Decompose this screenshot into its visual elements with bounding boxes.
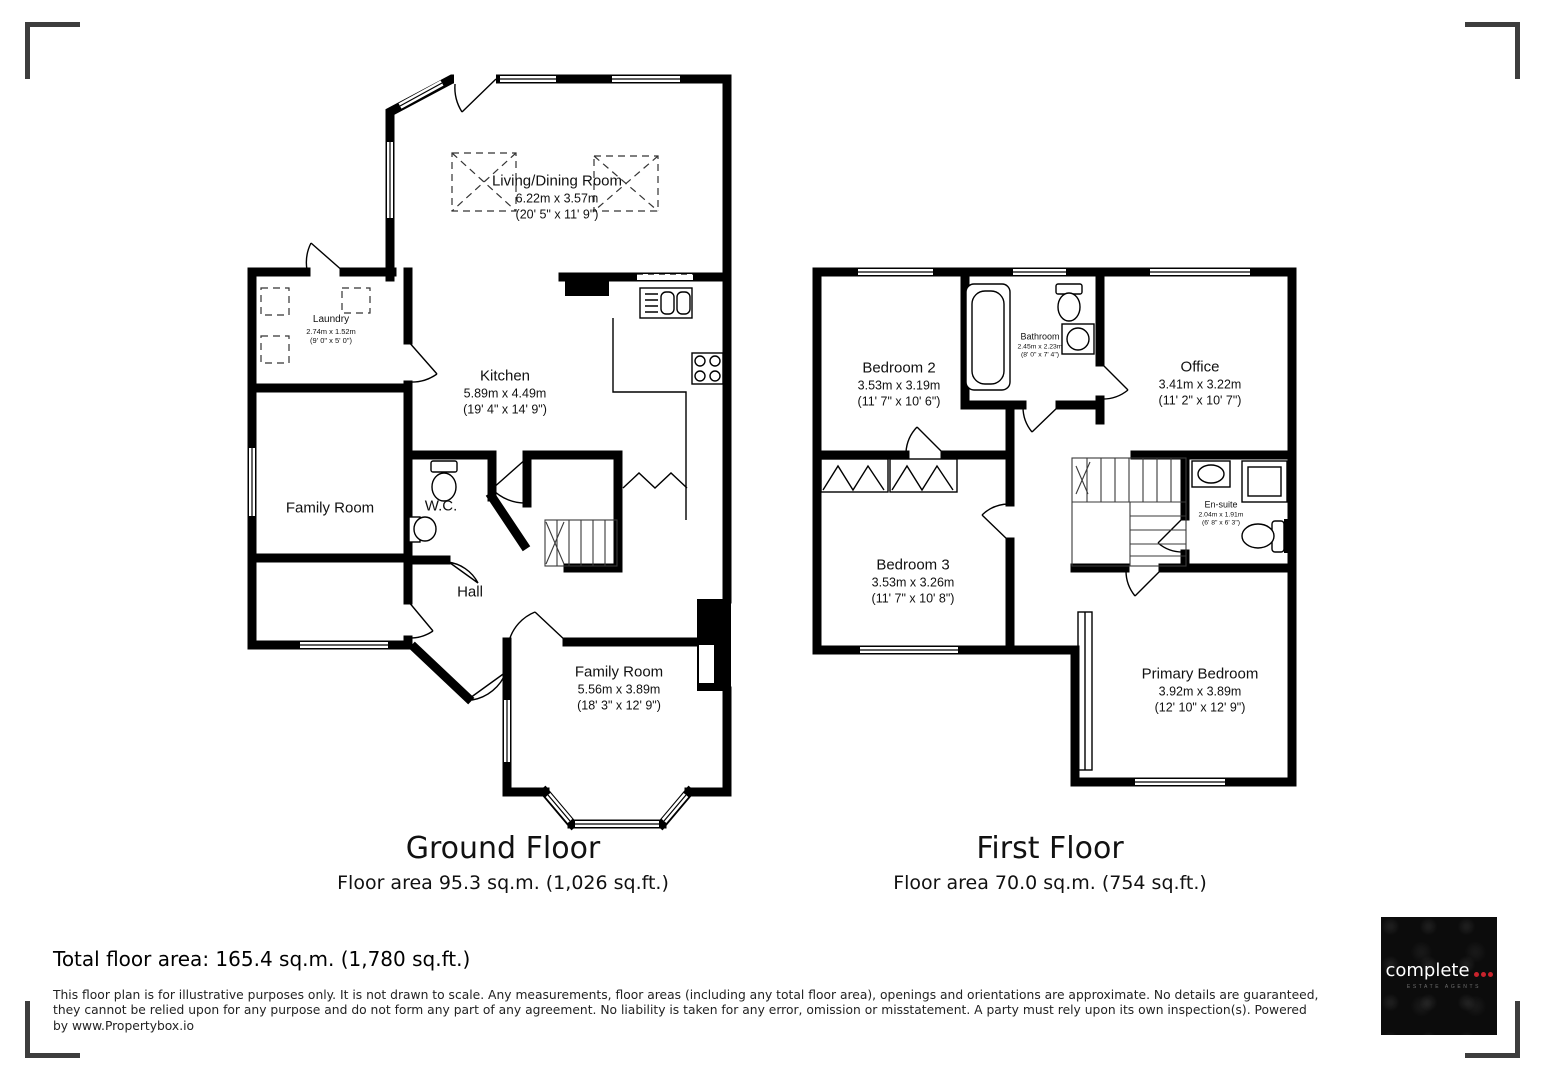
wc-toilet-icon: [431, 461, 457, 501]
room-label-office: Office 3.41m x 3.22m (11' 2" x 10' 7"): [1159, 357, 1242, 408]
room-name: Bedroom 3: [872, 555, 955, 574]
floor-plan-canvas: [0, 0, 1544, 1080]
room-name: Bedroom 2: [858, 358, 941, 377]
room-label-living-dining-room: Living/Dining Room 6.22m x 3.57m (20' 5"…: [492, 171, 622, 222]
ground-floor-stairs: [545, 520, 617, 566]
room-dimensions-metric: 2.45m x 2.23m: [1018, 343, 1063, 352]
disclaimer-line: This floor plan is for illustrative purp…: [53, 988, 1318, 1003]
room-dimensions-imperial: (20' 5" x 11' 9"): [492, 207, 622, 223]
shower-icon: [1242, 461, 1287, 502]
agency-logo: complete ESTATE AGENTS: [1381, 917, 1497, 1035]
room-dimensions-imperial: (18' 3" x 12' 9"): [575, 698, 663, 714]
bifold-door: [623, 473, 687, 488]
room-label-wc: W.C.: [425, 496, 458, 515]
room-label-family-room-2: Family Room 5.56m x 3.89m (18' 3" x 12' …: [575, 662, 663, 713]
bathroom-sink-icon: [1062, 324, 1094, 354]
first-floor-title: First Floor: [976, 831, 1123, 866]
logo-dots-icon: [1472, 972, 1493, 977]
room-name: Family Room: [575, 662, 663, 681]
room-name: Kitchen: [463, 366, 547, 385]
room-label-ensuite: En-suite 2.04m x 1.91m (6' 8" x 6' 3"): [1199, 500, 1244, 529]
room-dimensions-imperial: (8' 0" x 7' 4"): [1018, 352, 1063, 361]
kitchen-sink-icon: [640, 288, 692, 318]
room-dimensions-metric: 2.74m x 1.52m: [306, 327, 356, 337]
disclaimer-text: This floor plan is for illustrative purp…: [53, 988, 1318, 1034]
room-name: W.C.: [425, 496, 458, 515]
room-name: Office: [1159, 357, 1242, 376]
room-dimensions-metric: 3.53m x 3.26m: [872, 575, 955, 591]
bathroom-toilet-icon: [1056, 284, 1082, 321]
wc-sink-icon: [409, 517, 436, 542]
room-dimensions-metric: 5.56m x 3.89m: [575, 682, 663, 698]
room-label-hall: Hall: [457, 582, 483, 601]
room-label-primary-bedroom: Primary Bedroom 3.92m x 3.89m (12' 10" x…: [1142, 664, 1259, 715]
room-dimensions-imperial: (19' 4" x 14' 9"): [463, 402, 547, 418]
disclaimer-line: by www.Propertybox.io: [53, 1019, 1318, 1034]
room-name: En-suite: [1199, 500, 1244, 512]
room-label-kitchen: Kitchen 5.89m x 4.49m (19' 4" x 14' 9"): [463, 366, 547, 417]
ground-floor-title: Ground Floor: [406, 831, 601, 866]
room-name: Primary Bedroom: [1142, 664, 1259, 683]
first-floor-area: Floor area 70.0 sq.m. (754 sq.ft.): [893, 872, 1207, 894]
room-dimensions-metric: 5.89m x 4.49m: [463, 386, 547, 402]
bath-icon: [966, 284, 1010, 390]
room-dimensions-imperial: (11' 7" x 10' 6"): [858, 394, 941, 410]
room-dimensions-metric: 3.92m x 3.89m: [1142, 684, 1259, 700]
room-dimensions-metric: 3.53m x 3.19m: [858, 378, 941, 394]
room-dimensions-metric: 6.22m x 3.57m: [492, 191, 622, 207]
ground-floor-area: Floor area 95.3 sq.m. (1,026 sq.ft.): [337, 872, 669, 894]
ensuite-sink-icon: [1192, 461, 1230, 487]
room-label-bathroom: Bathroom 2.45m x 2.23m (8' 0" x 7' 4"): [1018, 332, 1063, 361]
room-dimensions-imperial: (6' 8" x 6' 3"): [1199, 520, 1244, 529]
room-name: Laundry: [306, 314, 356, 327]
room-name: Family Room: [286, 498, 374, 517]
closet: [821, 459, 957, 492]
total-floor-area: Total floor area: 165.4 sq.m. (1,780 sq.…: [53, 947, 470, 971]
room-dimensions-metric: 2.04m x 1.91m: [1199, 511, 1244, 520]
room-dimensions-imperial: (11' 7" x 10' 8"): [872, 591, 955, 607]
room-dimensions-imperial: (9' 0" x 5' 0"): [306, 336, 356, 346]
logo-brand-text: complete: [1385, 962, 1492, 980]
disclaimer-line: they cannot be relied upon for any purpo…: [53, 1003, 1318, 1018]
room-label-family-room: Family Room: [286, 498, 374, 517]
room-name: Bathroom: [1018, 332, 1063, 344]
ensuite-toilet-icon: [1242, 521, 1284, 552]
logo-brand-word: complete: [1385, 962, 1469, 980]
room-dimensions-imperial: (11' 2" x 10' 7"): [1159, 393, 1242, 409]
hob-icon: [692, 353, 723, 384]
room-name: Living/Dining Room: [492, 171, 622, 190]
wardrobe: [1078, 612, 1092, 770]
kitchen-counter: [613, 318, 686, 520]
room-label-bedroom-2: Bedroom 2 3.53m x 3.19m (11' 7" x 10' 6"…: [858, 358, 941, 409]
room-dimensions-imperial: (12' 10" x 12' 9"): [1142, 700, 1259, 716]
room-label-bedroom-3: Bedroom 3 3.53m x 3.26m (11' 7" x 10' 8"…: [872, 555, 955, 606]
logo-tagline: ESTATE AGENTS: [1407, 984, 1481, 990]
room-dimensions-metric: 3.41m x 3.22m: [1159, 377, 1242, 393]
room-label-laundry: Laundry 2.74m x 1.52m (9' 0" x 5' 0"): [306, 314, 356, 346]
room-name: Hall: [457, 582, 483, 601]
